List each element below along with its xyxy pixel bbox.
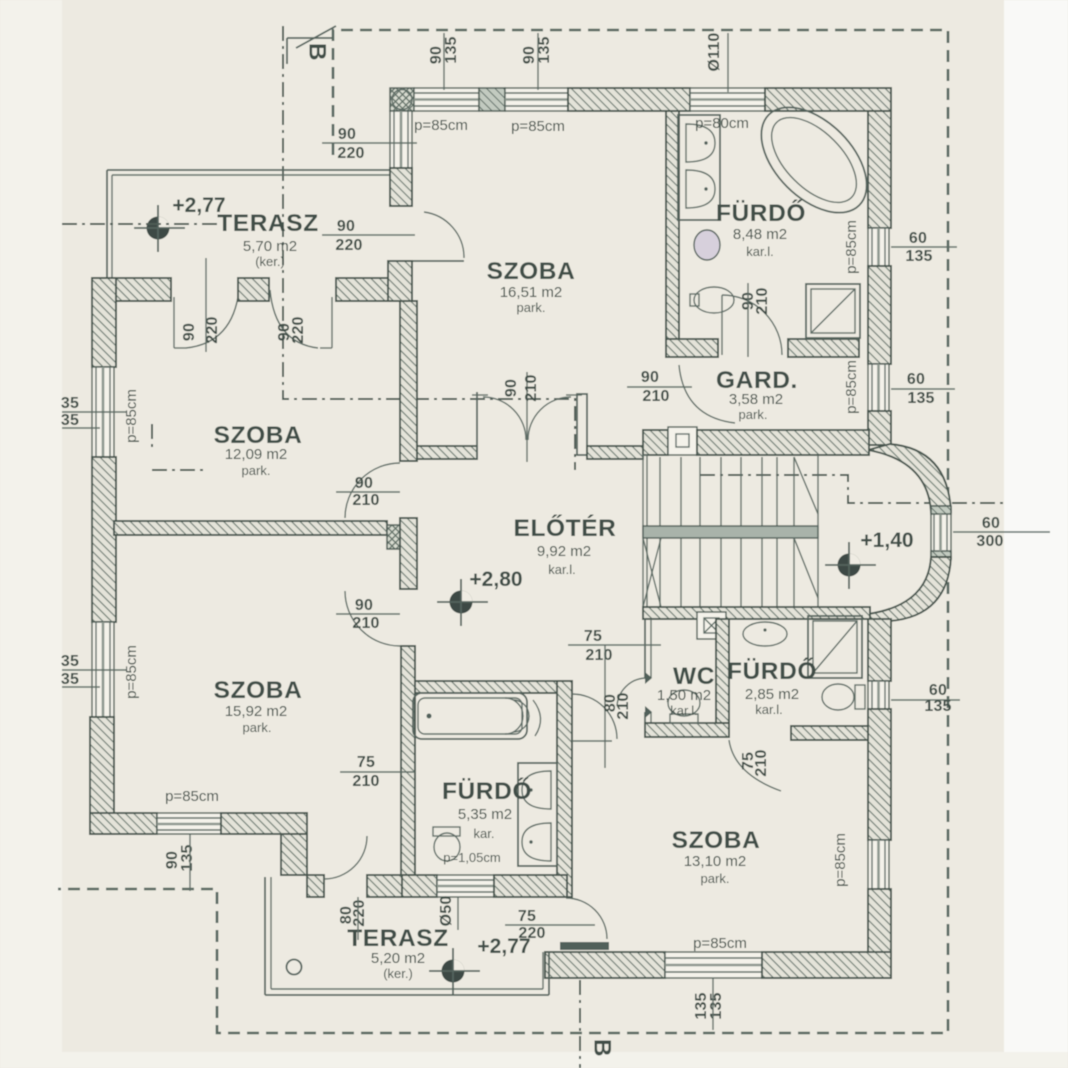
svg-text:TERASZ: TERASZ — [217, 210, 319, 237]
svg-text:90: 90 — [355, 475, 373, 492]
svg-text:90: 90 — [641, 369, 659, 386]
svg-text:60: 60 — [907, 371, 925, 388]
svg-text:B: B — [304, 43, 331, 61]
svg-text:(ker.): (ker.) — [255, 254, 285, 269]
svg-text:Ø110: Ø110 — [706, 32, 723, 71]
svg-text:2,85 m2: 2,85 m2 — [745, 686, 799, 703]
svg-text:210: 210 — [352, 773, 379, 790]
svg-text:FÜRDŐ: FÜRDŐ — [727, 657, 817, 685]
svg-text:p=85cm: p=85cm — [832, 833, 849, 887]
svg-text:p=1,05cm: p=1,05cm — [443, 850, 500, 865]
svg-text:220: 220 — [290, 316, 307, 343]
svg-text:220: 220 — [337, 145, 364, 162]
svg-text:kar.l.: kar.l. — [746, 244, 773, 259]
svg-text:135: 135 — [179, 844, 196, 871]
svg-text:Ø50: Ø50 — [438, 896, 455, 927]
svg-text:p=85cm: p=85cm — [123, 389, 140, 443]
svg-text:60: 60 — [909, 230, 927, 247]
svg-text:p=85cm: p=85cm — [843, 360, 860, 414]
svg-text:8,48 m2: 8,48 m2 — [733, 226, 787, 243]
svg-text:16,51 m2: 16,51 m2 — [500, 284, 563, 301]
svg-text:135: 135 — [708, 992, 725, 1019]
svg-text:WC: WC — [673, 663, 715, 690]
svg-text:park.: park. — [701, 871, 730, 886]
svg-text:5,20 m2: 5,20 m2 — [371, 950, 425, 967]
svg-text:35: 35 — [61, 412, 79, 429]
svg-text:35: 35 — [61, 653, 79, 670]
svg-text:SZOBA: SZOBA — [487, 258, 576, 285]
svg-text:90: 90 — [337, 218, 355, 235]
svg-text:p=85cm: p=85cm — [693, 935, 747, 952]
svg-text:kar.l.: kar.l. — [755, 702, 782, 717]
svg-text:135: 135 — [907, 390, 934, 407]
svg-text:TERASZ: TERASZ — [347, 925, 449, 952]
svg-text:13,10 m2: 13,10 m2 — [684, 853, 747, 870]
svg-text:kar.: kar. — [474, 826, 495, 841]
svg-text:220: 220 — [335, 237, 362, 254]
svg-text:60: 60 — [982, 515, 1000, 532]
svg-text:+1,40: +1,40 — [860, 529, 913, 552]
svg-text:210: 210 — [523, 374, 540, 401]
svg-text:(ker.): (ker.) — [383, 966, 413, 981]
svg-text:300: 300 — [976, 533, 1003, 550]
svg-text:90: 90 — [338, 126, 356, 143]
svg-text:SZOBA: SZOBA — [214, 677, 303, 704]
svg-text:ELŐTÉR: ELŐTÉR — [514, 514, 617, 542]
svg-text:park.: park. — [242, 463, 271, 478]
svg-text:FÜRDŐ: FÜRDŐ — [716, 199, 806, 227]
svg-text:FÜRDŐ: FÜRDŐ — [442, 777, 532, 805]
svg-text:90: 90 — [355, 597, 373, 614]
svg-text:210: 210 — [352, 615, 379, 632]
svg-text:210: 210 — [642, 388, 669, 405]
svg-text:park.: park. — [739, 407, 768, 422]
svg-text:210: 210 — [754, 287, 771, 314]
svg-text:SZOBA: SZOBA — [214, 422, 303, 449]
svg-text:p=80cm: p=80cm — [695, 115, 749, 132]
svg-text:210: 210 — [585, 647, 612, 664]
svg-text:90: 90 — [181, 323, 198, 341]
svg-text:p=85cm: p=85cm — [123, 645, 140, 699]
svg-text:12,09 m2: 12,09 m2 — [225, 446, 288, 463]
svg-text:35: 35 — [61, 671, 79, 688]
svg-text:60: 60 — [929, 682, 947, 699]
svg-text:220: 220 — [518, 925, 545, 942]
svg-text:GARD.: GARD. — [716, 367, 798, 394]
svg-text:135: 135 — [443, 36, 460, 63]
svg-text:75: 75 — [584, 628, 602, 645]
svg-text:kar.l.: kar.l. — [670, 703, 697, 718]
svg-text:5,70 m2: 5,70 m2 — [243, 238, 297, 255]
svg-text:15,92 m2: 15,92 m2 — [225, 703, 288, 720]
svg-text:p=85cm: p=85cm — [843, 220, 860, 274]
svg-text:210: 210 — [753, 749, 770, 776]
svg-text:135: 135 — [924, 698, 951, 715]
svg-text:220: 220 — [351, 899, 368, 926]
svg-text:75: 75 — [357, 754, 375, 771]
svg-text:75: 75 — [518, 908, 536, 925]
svg-text:5,35 m2: 5,35 m2 — [458, 806, 512, 823]
svg-text:135: 135 — [905, 248, 932, 265]
svg-text:+2,80: +2,80 — [469, 568, 522, 591]
svg-text:210: 210 — [615, 692, 632, 719]
svg-text:park.: park. — [243, 720, 272, 735]
svg-text:9,92 m2: 9,92 m2 — [537, 543, 591, 560]
svg-text:p=85cm: p=85cm — [414, 117, 468, 134]
svg-text:B: B — [589, 1039, 616, 1057]
svg-text:1,50 m2: 1,50 m2 — [657, 687, 711, 704]
svg-text:35: 35 — [61, 395, 79, 412]
svg-text:park.: park. — [517, 300, 546, 315]
svg-text:210: 210 — [352, 492, 379, 509]
svg-text:kar.l.: kar.l. — [548, 562, 575, 577]
svg-text:3,58 m2: 3,58 m2 — [729, 391, 783, 408]
svg-text:SZOBA: SZOBA — [672, 827, 761, 854]
svg-text:90: 90 — [503, 379, 520, 397]
svg-text:p=85cm: p=85cm — [511, 118, 565, 135]
svg-text:p=85cm: p=85cm — [165, 788, 219, 805]
